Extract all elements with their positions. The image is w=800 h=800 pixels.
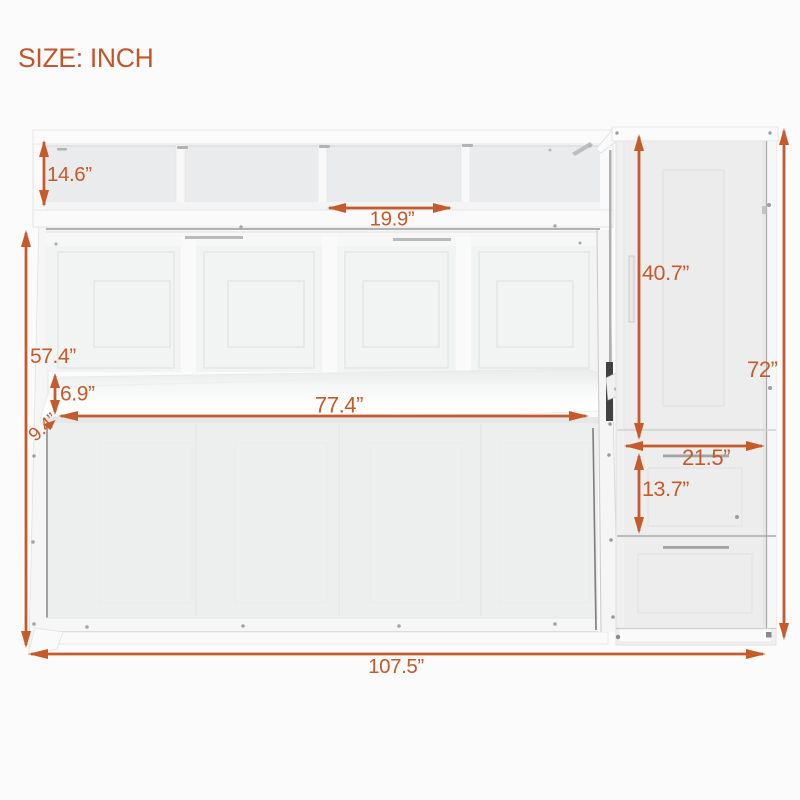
svg-text:77.4”: 77.4” bbox=[315, 393, 363, 418]
svg-text:21.5”: 21.5” bbox=[682, 445, 730, 470]
svg-text:72”: 72” bbox=[747, 357, 778, 382]
svg-text:13.7”: 13.7” bbox=[642, 477, 689, 501]
svg-text:40.7”: 40.7” bbox=[642, 261, 689, 285]
svg-text:14.6”: 14.6” bbox=[47, 163, 92, 186]
svg-text:107.5”: 107.5” bbox=[368, 655, 424, 678]
svg-text:19.9”: 19.9” bbox=[370, 208, 415, 231]
svg-text:57.4”: 57.4” bbox=[30, 345, 76, 368]
svg-text:6.9”: 6.9” bbox=[60, 383, 95, 406]
svg-text:SIZE: INCH: SIZE: INCH bbox=[18, 43, 153, 73]
